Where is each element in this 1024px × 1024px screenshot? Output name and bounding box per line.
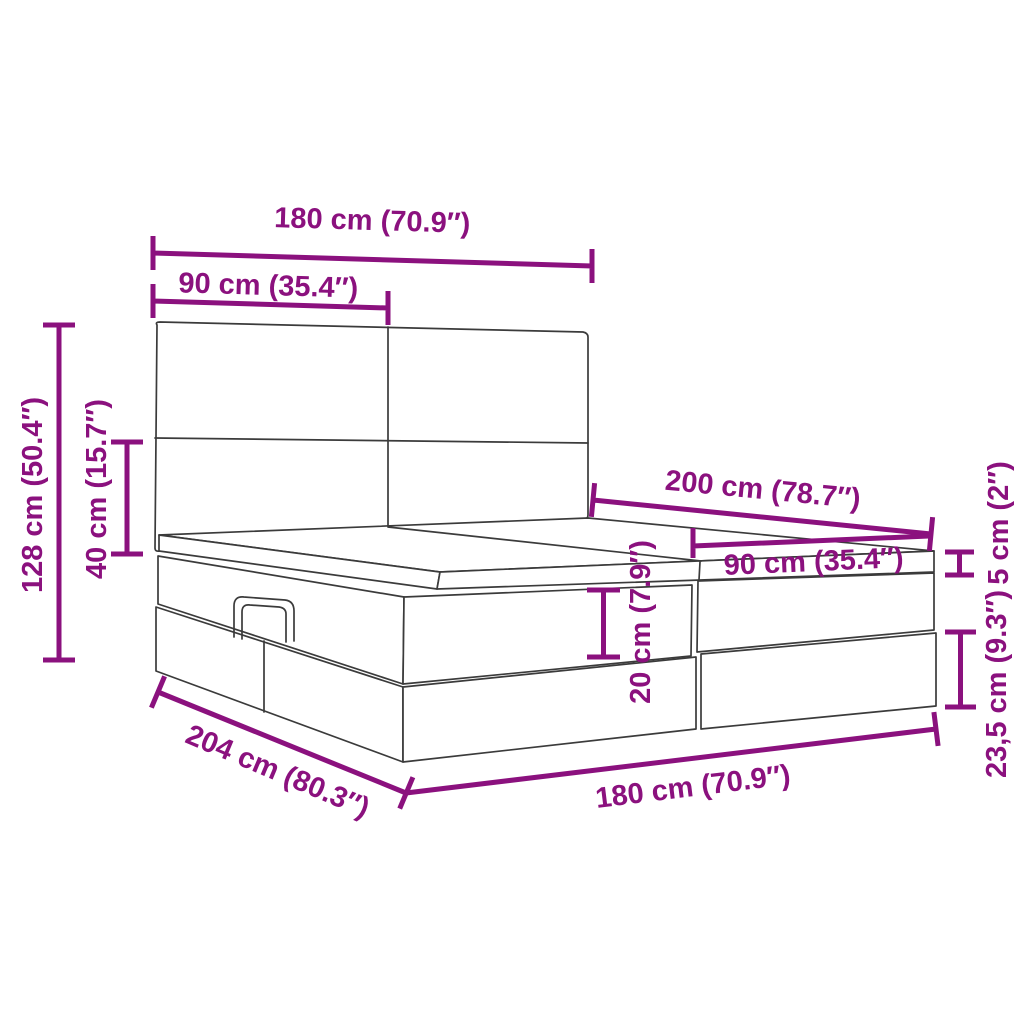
dimension-label: 90 cm (35.4″) bbox=[178, 267, 359, 304]
dimension-label: 128 cm (50.4″) bbox=[17, 397, 49, 593]
dimension-lower-box-height: 23,5 cm (9.3″) bbox=[945, 590, 1013, 778]
dimension-label: 40 cm (15.7″) bbox=[81, 399, 113, 579]
diagram-canvas: 180 cm (70.9″) 90 cm (35.4″) 128 cm (50.… bbox=[0, 0, 1024, 1024]
bed-dimension-diagram: 180 cm (70.9″) 90 cm (35.4″) 128 cm (50.… bbox=[0, 0, 1024, 1024]
dimension-total-height: 128 cm (50.4″) bbox=[17, 325, 75, 660]
dimension-label: 20 cm (7.9″) bbox=[625, 540, 657, 704]
dimension-headboard-above-base: 40 cm (15.7″) bbox=[81, 399, 143, 579]
dimension-label: 180 cm (70.9″) bbox=[274, 202, 471, 240]
dimension-line bbox=[111, 442, 143, 554]
headboard-panel-grid bbox=[155, 322, 588, 551]
dimension-line bbox=[945, 552, 974, 575]
dimension-label: 23,5 cm (9.3″) bbox=[981, 590, 1013, 778]
mattress-foot-split-step bbox=[699, 562, 700, 580]
dimension-topper-thickness: 5 cm (2″) bbox=[945, 461, 1015, 585]
dimension-label: 5 cm (2″) bbox=[983, 461, 1015, 585]
dimension-line bbox=[945, 632, 976, 707]
dimension-headboard-panel-width: 90 cm (35.4″) bbox=[153, 267, 388, 325]
